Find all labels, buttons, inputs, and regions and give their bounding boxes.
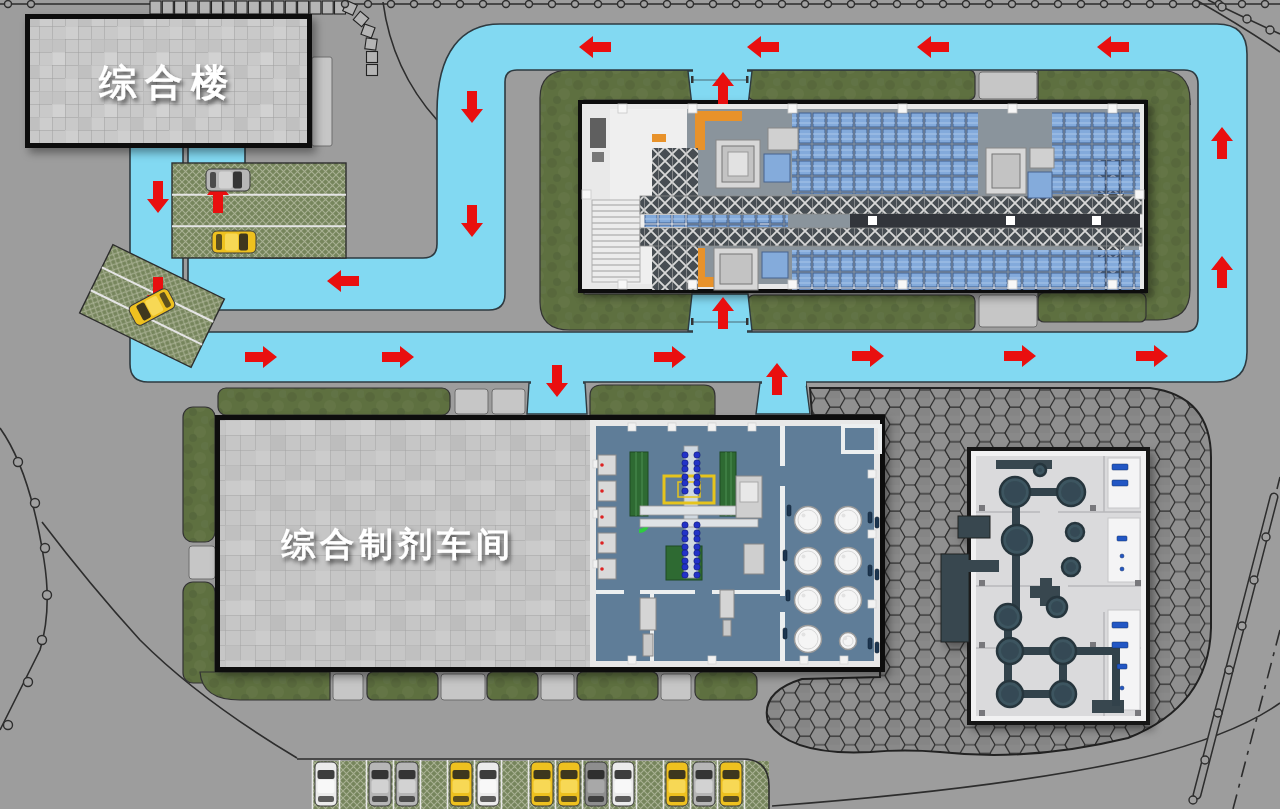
storage-tank	[795, 548, 822, 575]
fence-post	[1201, 756, 1209, 764]
grass-workshop-north-1	[218, 388, 450, 415]
fence-post	[1218, 3, 1226, 11]
storage-tank	[795, 626, 822, 653]
fence-post	[526, 1, 533, 8]
car-silver	[206, 169, 250, 191]
walkway-workshop-south-2	[441, 674, 485, 700]
process-tank	[1000, 477, 1030, 507]
car-white	[477, 762, 499, 806]
gas-bottle	[783, 628, 787, 639]
wall-segment	[224, 1, 235, 14]
fence-post	[388, 1, 395, 8]
fence-post	[28, 1, 35, 8]
stepping-stone	[365, 38, 377, 50]
car-yellow	[720, 762, 742, 806]
fence-post	[825, 1, 832, 8]
warehouse-stairs	[592, 200, 640, 282]
process-tank	[997, 681, 1023, 707]
walkway-admin-east	[312, 57, 332, 146]
process-tank	[1066, 523, 1084, 541]
fence-post	[1238, 622, 1246, 630]
pallet-array-2	[1052, 112, 1140, 194]
fence-post	[963, 1, 970, 8]
fence-post	[411, 1, 418, 8]
workshop-dispensers	[598, 455, 616, 579]
grass-workshop-west-1	[183, 407, 215, 542]
stub-workshop-out	[756, 383, 810, 414]
wall-segment	[273, 1, 284, 14]
gas-bottle	[868, 512, 872, 523]
fence-post	[1189, 796, 1197, 804]
grass-workshop-south-2	[367, 672, 438, 700]
orange-desk	[652, 134, 666, 142]
stepping-stone	[367, 65, 378, 76]
site-plan: 综合楼	[0, 0, 1280, 809]
car-silver	[396, 762, 418, 806]
fence-post	[549, 1, 556, 8]
wall-segment	[199, 1, 210, 14]
gas-bottle	[783, 550, 787, 561]
fence-post	[618, 1, 625, 8]
gas-bottle	[868, 638, 872, 649]
walkway-workshop-south-3	[541, 674, 574, 700]
fence-post	[710, 1, 717, 8]
grass-workshop-north-2	[590, 385, 715, 415]
fence-post	[641, 1, 648, 8]
fence-post	[5, 1, 12, 8]
admin-building-label: 综合楼	[98, 62, 237, 103]
fence-post	[871, 1, 878, 8]
wall-segment	[285, 1, 296, 14]
fence-post	[1243, 15, 1251, 23]
wall-segment	[162, 1, 173, 14]
dispenser-unit	[598, 455, 616, 475]
fence-post	[1266, 26, 1274, 34]
wall-segment	[236, 1, 247, 14]
grass-workshop-south-3	[487, 672, 538, 700]
car-white	[612, 762, 634, 806]
process-tank	[997, 638, 1023, 664]
grass-workshop-south-1	[200, 672, 330, 700]
wall-segment	[298, 1, 309, 14]
car-yellow	[531, 762, 553, 806]
fence-post	[687, 1, 694, 8]
pallet-strip-mid	[644, 215, 788, 227]
wall-segment	[261, 1, 272, 14]
site-plan-svg: 综合楼	[0, 0, 1280, 809]
stepping-stone	[367, 52, 378, 63]
walkway-workshop-west	[189, 546, 215, 579]
fence-post	[1225, 666, 1233, 674]
grass-warehouse-north	[748, 70, 975, 100]
process-tank	[1057, 478, 1085, 506]
grass-warehouse-south	[748, 295, 975, 330]
storage-tank	[795, 507, 822, 534]
walkway-workshop-north-2	[492, 389, 525, 414]
walkway-warehouse-south	[979, 295, 1037, 327]
fence-post	[503, 1, 510, 8]
gas-bottle	[786, 590, 790, 601]
storage-tank	[835, 548, 862, 575]
fence-post	[1032, 1, 1039, 8]
car-grey	[585, 762, 607, 806]
fence-post	[1262, 533, 1270, 541]
conveyor-line-1	[640, 196, 1142, 214]
fence-post	[802, 1, 809, 8]
parking-west-surface	[172, 163, 346, 258]
gas-bottle	[868, 565, 872, 576]
fence-post	[756, 1, 763, 8]
car-silver	[369, 762, 391, 806]
wall-segment	[248, 1, 259, 14]
process-tank	[1050, 638, 1076, 664]
fence-post	[940, 1, 947, 8]
process-tank	[995, 604, 1021, 630]
car-yellow	[450, 762, 472, 806]
car-yellow	[212, 231, 256, 253]
fence-post	[480, 1, 487, 8]
fence-post	[365, 1, 372, 8]
walkway-workshop-south-4	[661, 674, 691, 700]
dispenser-unit	[598, 559, 616, 579]
wall-segment	[212, 1, 223, 14]
dispenser-unit	[598, 533, 616, 553]
fence-post	[572, 1, 579, 8]
fence-post	[1239, 1, 1246, 8]
wall-segment	[150, 1, 161, 14]
process-tank	[1062, 558, 1080, 576]
gas-bottle	[875, 569, 879, 580]
process-tank	[1002, 525, 1032, 555]
process-tank	[1050, 681, 1076, 707]
fence-post	[986, 1, 993, 8]
gas-bottle	[875, 517, 879, 528]
wall-segment	[187, 1, 198, 14]
dispenser-unit	[598, 481, 616, 501]
fence-post	[779, 1, 786, 8]
dispenser-unit	[598, 507, 616, 527]
grass-workshop-south-5	[695, 672, 757, 700]
wall-segment	[322, 1, 333, 14]
conveyor-tower-top	[652, 148, 698, 196]
walkway-workshop-north-1	[455, 389, 488, 414]
grass-workshop-west-2	[183, 582, 215, 683]
fence-post	[1170, 1, 1177, 8]
fence-post	[1101, 1, 1108, 8]
fence-post	[894, 1, 901, 8]
storage-tank	[840, 633, 857, 650]
warehouse-hvac-unit	[590, 118, 606, 148]
storage-tank	[835, 507, 862, 534]
warehouse-building	[578, 100, 1148, 293]
fence-post	[1147, 1, 1154, 8]
fence-post	[1262, 1, 1269, 8]
car-white	[315, 762, 337, 806]
process-tank	[1047, 597, 1067, 617]
utility-building	[941, 447, 1150, 725]
gas-bottle	[875, 642, 879, 653]
fence-post	[41, 544, 50, 553]
car-yellow	[666, 762, 688, 806]
car-silver	[693, 762, 715, 806]
grass-warehouse-southeast	[1038, 293, 1146, 322]
storage-tank	[835, 587, 862, 614]
fence-post	[1055, 1, 1062, 8]
fence-post	[1078, 1, 1085, 8]
storage-tank	[795, 587, 822, 614]
pallet-array-3	[792, 250, 1140, 290]
fence-post	[43, 591, 52, 600]
wall-segment	[310, 1, 321, 14]
workshop-building-label: 综合制剂车间	[281, 525, 515, 563]
fence-post	[14, 458, 23, 467]
fence-post	[917, 1, 924, 8]
fence-post	[664, 1, 671, 8]
fence-post	[1009, 1, 1016, 8]
walkway-warehouse-north	[979, 72, 1037, 99]
fence-post	[1124, 1, 1131, 8]
fence-post	[595, 1, 602, 8]
fence-post	[1193, 1, 1200, 8]
wall-segment	[175, 1, 186, 14]
fence-post	[457, 1, 464, 8]
walkway-workshop-south-1	[333, 674, 363, 700]
grass-workshop-south-4	[577, 672, 658, 700]
gas-bottle	[787, 505, 791, 516]
fence-post	[1250, 576, 1258, 584]
fence-post	[434, 1, 441, 8]
fence-post	[38, 636, 47, 645]
process-tank	[1034, 464, 1046, 476]
fence-post	[4, 721, 13, 730]
fence-post	[24, 678, 33, 687]
car-yellow	[558, 762, 580, 806]
fence-post	[848, 1, 855, 8]
fence-post	[31, 499, 40, 508]
fence-post	[1214, 709, 1222, 717]
fence-post	[733, 1, 740, 8]
conveyor-line-2	[640, 228, 1142, 246]
fence-post	[342, 1, 349, 8]
pallet-array-1	[792, 112, 978, 194]
